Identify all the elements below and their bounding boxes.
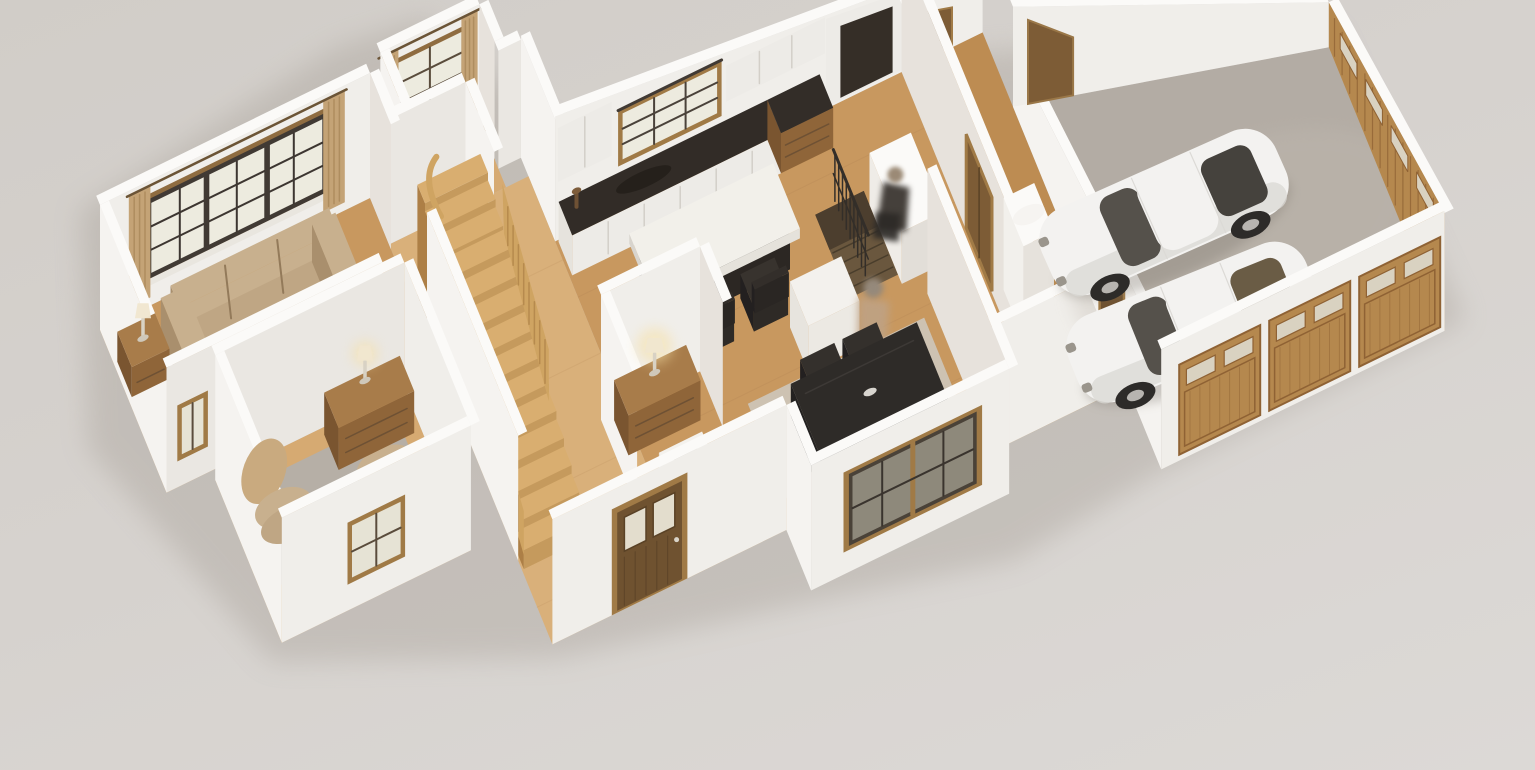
console-lamp-shade <box>645 338 665 353</box>
standing-figure-head <box>863 278 883 298</box>
entry-door-knob <box>674 537 679 542</box>
seated-figure-head <box>887 167 903 183</box>
seated-figure-chair <box>872 212 900 242</box>
living-room-lamp-shade <box>135 303 151 318</box>
study-lamp-shade <box>357 346 373 361</box>
floor-plan-render <box>0 0 1535 770</box>
nook-step-wall <box>498 40 521 169</box>
render-viewport <box>0 0 1535 770</box>
